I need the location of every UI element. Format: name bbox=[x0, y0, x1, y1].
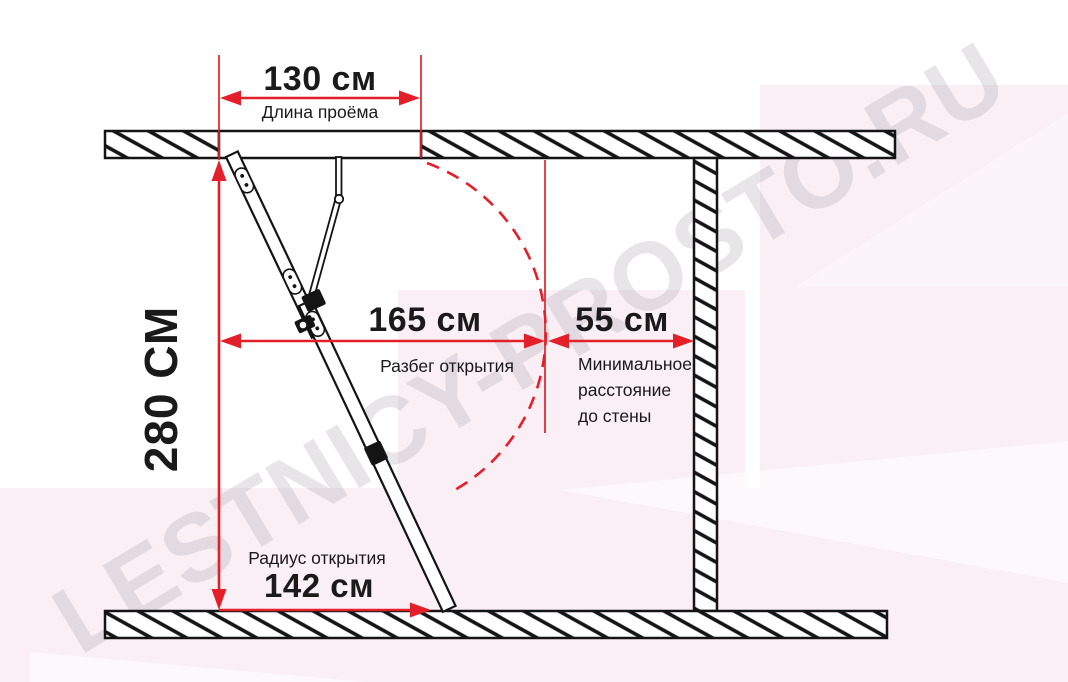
ceiling-opening bbox=[219, 131, 421, 158]
ladder bbox=[226, 151, 457, 612]
hatch-rod bbox=[336, 157, 342, 199]
hinge-plate bbox=[233, 166, 256, 195]
floor bbox=[105, 611, 887, 638]
dimension-value-opening-length: 130 см bbox=[170, 60, 470, 99]
arm-joint-top bbox=[335, 195, 343, 203]
dimension-value-wall-distance: 55 см bbox=[522, 301, 722, 340]
diagram-stage: LESTNICY-PROSTO.RU bbox=[0, 0, 1068, 682]
ceiling-right-section bbox=[421, 131, 895, 158]
ceiling-left-section bbox=[105, 131, 219, 158]
dimension-value-opening-radius: 142 см bbox=[194, 567, 444, 605]
arrow-165-left bbox=[220, 334, 241, 349]
dimension-label-opening-radius: Радиус открытия bbox=[192, 548, 442, 569]
dimension-label-wall-distance: Минимальное расстояние до стены bbox=[578, 351, 748, 429]
dimension-label-opening-length: Длина проёма bbox=[170, 102, 470, 123]
dimension-value-ceiling-height: 280 СМ bbox=[134, 259, 192, 519]
dimension-value-opening-run: 165 см bbox=[300, 301, 550, 340]
dimension-label-opening-run: Разбег открытия bbox=[322, 356, 572, 377]
arrow-280-up bbox=[212, 160, 227, 181]
hinge-plate bbox=[281, 267, 304, 296]
